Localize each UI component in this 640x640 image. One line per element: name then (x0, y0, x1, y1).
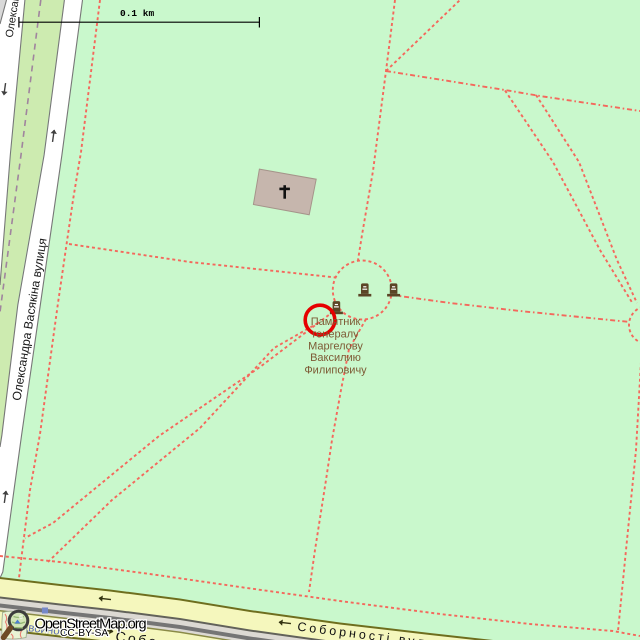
svg-text:CC-BY-SA: CC-BY-SA (60, 628, 108, 639)
svg-text:Ваксилию: Ваксилию (310, 352, 361, 364)
svg-text:Филиповичу: Филиповичу (304, 364, 367, 376)
svg-text:генералу: генералу (312, 328, 359, 340)
svg-text:Памятник: Памятник (311, 316, 361, 328)
svg-text:Маргелову: Маргелову (308, 340, 363, 352)
svg-text:0.1 km: 0.1 km (120, 8, 155, 19)
